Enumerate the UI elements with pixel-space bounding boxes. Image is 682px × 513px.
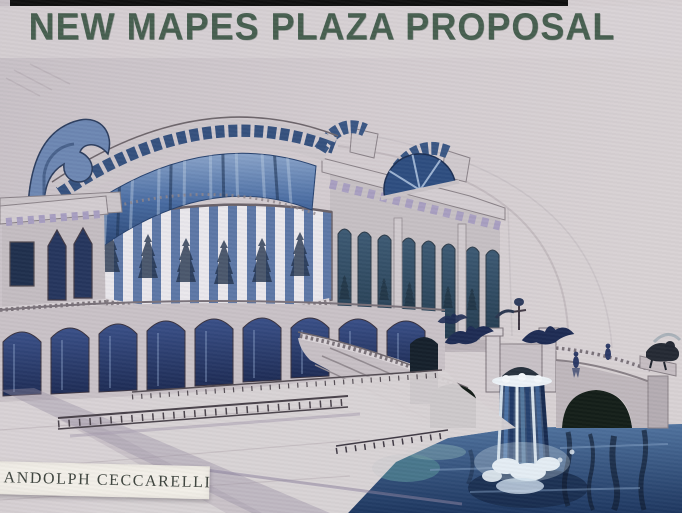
photograph-of-architectural-rendering: NEW MAPES PLAZA PROPOSAL ANDOLPH CECCARE… [0, 0, 682, 513]
title-text: NEW MAPES PLAZA PROPOSAL [0, 8, 644, 46]
watercolor-painting [0, 0, 682, 513]
pilaster [458, 224, 466, 342]
artist-signature-card: ANDOLPH CECCARELLI [0, 461, 210, 499]
square-window [10, 242, 34, 286]
gothic-arch-window [74, 228, 92, 298]
artist-signature: ANDOLPH CECCARELLI [3, 469, 211, 492]
gothic-arch-window [48, 230, 66, 300]
